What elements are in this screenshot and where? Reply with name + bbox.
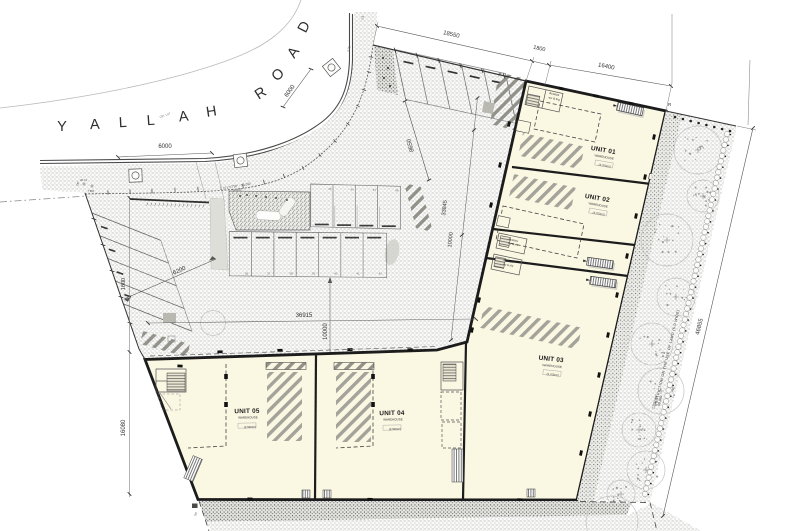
svg-text:TBM: TBM bbox=[88, 189, 95, 193]
svg-text:WAREHOUSE: WAREHOUSE bbox=[383, 417, 403, 421]
svg-text:(2,590m²): (2,590m²) bbox=[244, 425, 256, 429]
svg-text:6000: 6000 bbox=[158, 144, 172, 150]
svg-text:L: L bbox=[118, 115, 127, 131]
svg-text:Y: Y bbox=[57, 119, 67, 135]
svg-text:47: 47 bbox=[373, 188, 377, 192]
svg-text:40: 40 bbox=[334, 272, 338, 276]
svg-text:41: 41 bbox=[356, 272, 360, 276]
svg-text:A: A bbox=[178, 109, 190, 126]
svg-text:1800: 1800 bbox=[121, 278, 127, 290]
svg-text:45.72: 45.72 bbox=[80, 178, 87, 182]
svg-text:37: 37 bbox=[267, 272, 271, 276]
svg-text:46: 46 bbox=[350, 187, 354, 191]
svg-text:A: A bbox=[90, 117, 101, 133]
svg-text:(2,590m²): (2,590m²) bbox=[389, 427, 401, 431]
svg-text:UNIT 05: UNIT 05 bbox=[234, 408, 260, 415]
svg-text:WAREHOUSE: WAREHOUSE bbox=[238, 415, 258, 419]
svg-text:10000: 10000 bbox=[323, 323, 329, 340]
svg-text:16080: 16080 bbox=[121, 419, 127, 436]
svg-text:42: 42 bbox=[379, 272, 383, 276]
svg-text:36915: 36915 bbox=[296, 313, 313, 319]
svg-text:36: 36 bbox=[245, 272, 249, 276]
svg-text:38: 38 bbox=[289, 272, 293, 276]
svg-text:L: L bbox=[146, 113, 155, 130]
svg-text:39: 39 bbox=[312, 272, 316, 276]
svg-text:48: 48 bbox=[395, 189, 399, 193]
svg-text:UNIT 04: UNIT 04 bbox=[379, 410, 405, 417]
svg-text:45: 45 bbox=[328, 187, 332, 191]
